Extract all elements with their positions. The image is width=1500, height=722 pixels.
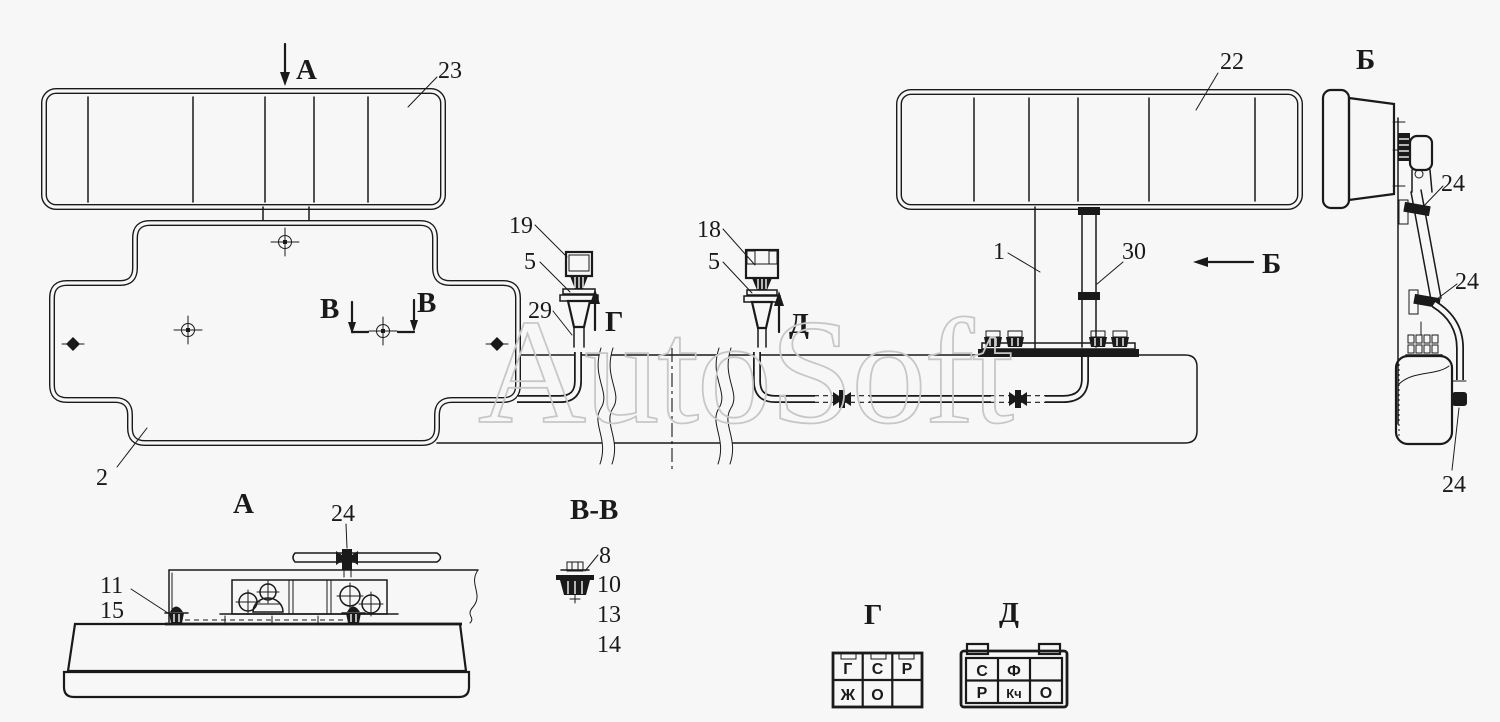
side-plug [1452, 392, 1467, 406]
ref-label-2: 2 [96, 465, 108, 491]
ref-label-24-upper: 24 [1441, 171, 1465, 197]
section-marker-b-right: В [417, 287, 436, 319]
pin-d-5: Кч [1006, 686, 1021, 701]
ref-label-1: 1 [993, 239, 1005, 265]
technical-drawing: 23 А 2 В В [0, 0, 1500, 722]
pin-d-1: С [976, 663, 988, 680]
ref-label-22: 22 [1220, 49, 1244, 75]
ref-label-19: 19 [509, 213, 533, 239]
pin-d-2: Ф [1007, 663, 1021, 680]
ref-label-11: 11 [100, 573, 123, 599]
ref-label-5-left: 5 [524, 249, 536, 275]
ref-label-23: 23 [438, 58, 462, 84]
watermark-text: AutoSoft [478, 289, 1013, 455]
view-b-title: Б [1356, 44, 1375, 76]
ref-label-14: 14 [597, 632, 621, 658]
pin-g-3: Р [902, 661, 913, 678]
ref-label-24-mid: 24 [1455, 269, 1479, 295]
view-arrow-b-label: Б [1262, 248, 1281, 280]
pinout-d-title: Д [999, 597, 1019, 629]
ref-label-24-view-a: 24 [331, 501, 355, 527]
pin-g-4: Ж [840, 687, 856, 704]
ref-label-13: 13 [597, 602, 621, 628]
pin-g-2: С [872, 661, 884, 678]
pin-d-4: Р [977, 685, 988, 702]
view-arrow-a-label: А [296, 54, 317, 86]
ref-label-10: 10 [597, 572, 621, 598]
ref-label-8: 8 [599, 543, 611, 569]
ref-label-30: 30 [1122, 239, 1146, 265]
section-marker-b-left: В [320, 293, 339, 325]
pin-d-6: О [1040, 685, 1052, 702]
ref-label-15: 15 [100, 598, 124, 624]
section-bb-title: В-В [570, 494, 618, 526]
ref-label-5-right: 5 [708, 249, 720, 275]
view-a-title: А [233, 488, 254, 520]
pinout-g-title: Г [864, 599, 882, 631]
pin-g-5: О [871, 687, 883, 704]
ref-label-24-lower: 24 [1442, 472, 1466, 498]
pin-g-1: Г [843, 661, 852, 678]
ref-label-18: 18 [697, 217, 721, 243]
